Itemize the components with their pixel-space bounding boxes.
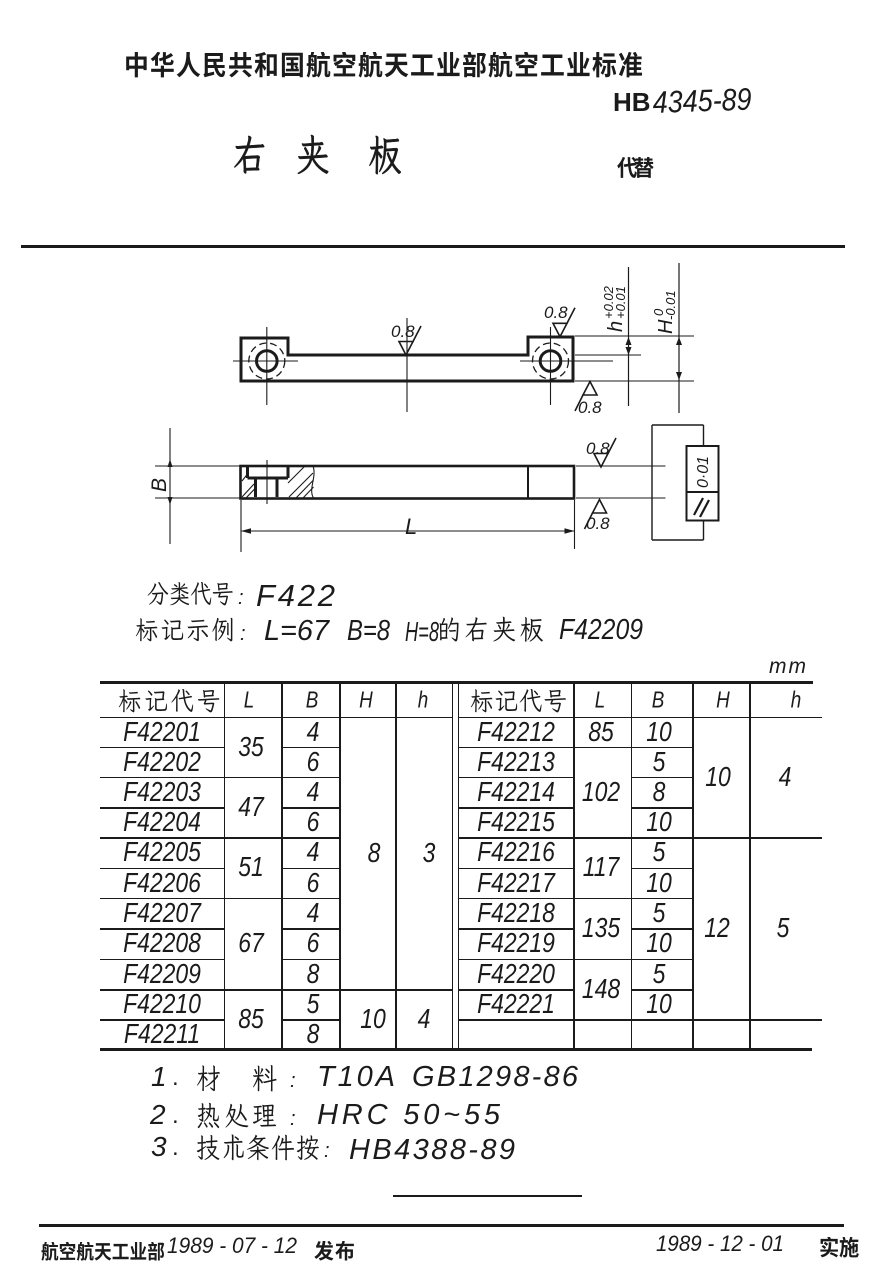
svg-text:0.8: 0.8	[544, 303, 568, 322]
svg-text:B: B	[148, 478, 171, 492]
svg-text:L: L	[405, 514, 417, 539]
svg-text:0·01: 0·01	[695, 456, 712, 488]
svg-text:H: H	[655, 319, 677, 334]
svg-text:0.8: 0.8	[391, 322, 415, 341]
svg-text:-0.01: -0.01	[663, 290, 678, 320]
svg-text:0.8: 0.8	[586, 514, 610, 533]
svg-text:+0.01: +0.01	[613, 286, 628, 319]
svg-text:0.8: 0.8	[578, 398, 602, 417]
svg-text:h: h	[605, 321, 627, 332]
